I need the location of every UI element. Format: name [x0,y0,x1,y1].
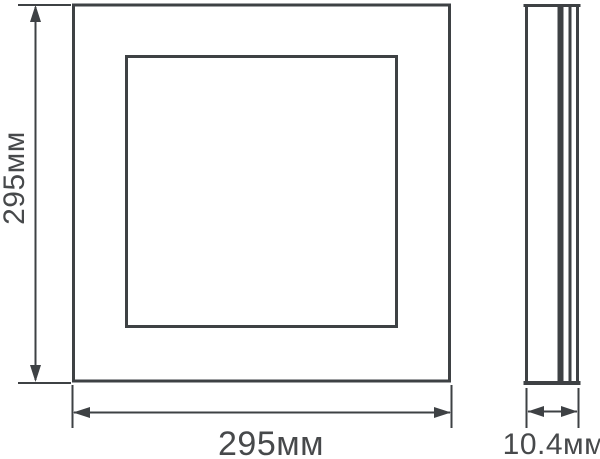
height-dimension: 295мм [0,5,71,383]
depth-arrow-right [561,406,578,417]
height-arrow-down [30,365,41,382]
drawing-svg: 295мм 295мм 10.4мм [0,0,600,459]
front-view-inner-square [127,57,397,327]
front-view [74,5,450,381]
depth-dim-label: 10.4мм [503,428,600,459]
depth-arrow-left [528,406,545,417]
width-arrow-left [73,407,90,418]
width-arrow-right [434,407,451,418]
width-dimension: 295мм [73,385,452,459]
panel-dimension-drawing: 295мм 295мм 10.4мм [0,0,600,459]
front-view-outer-square [74,5,450,381]
depth-dimension: 10.4мм [503,388,600,459]
width-dim-label: 295мм [218,425,324,459]
height-arrow-up [30,5,41,22]
height-dim-label: 295мм [0,131,31,225]
side-view [524,5,581,383]
